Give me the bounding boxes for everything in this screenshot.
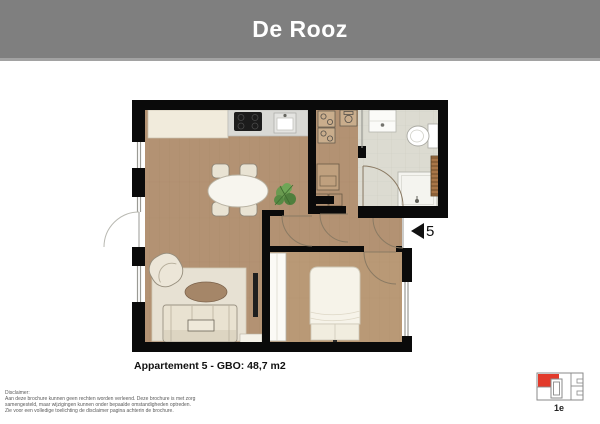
floorplan-drawing (0, 0, 600, 424)
vanity-sink-icon (369, 110, 396, 132)
disclaimer-line: Zie voor een volledige toelichting de di… (5, 408, 305, 414)
bed (310, 267, 360, 343)
tv-icon (253, 273, 258, 317)
entry-marker-number: 5 (426, 223, 434, 240)
coffee-table (185, 282, 227, 302)
entry-marker: 5 (411, 222, 434, 240)
kitchen-counter (148, 110, 308, 138)
boiler-icon (340, 110, 357, 126)
dining-table (208, 175, 268, 207)
wardrobe (268, 253, 286, 341)
disclaimer-block: Disclaimer: Aan deze brochure kunnen gee… (5, 390, 305, 414)
counter-cream (148, 110, 228, 138)
key-plan-legend: 1e (528, 368, 590, 413)
bottom-wall-element (240, 334, 262, 343)
brochure-page: De Rooz (0, 0, 600, 424)
toilet-icon (407, 124, 438, 148)
dryer-icon (318, 128, 335, 143)
sink-icon (274, 113, 296, 133)
sofa (163, 305, 237, 342)
floor-label: 1e (528, 403, 590, 413)
entry-arrow-icon (411, 223, 424, 239)
washer-icon (318, 111, 335, 127)
apartment-caption: Appartement 5 - GBO: 48,7 m2 (134, 360, 286, 372)
cooktop-icon (234, 112, 262, 131)
sofa-tray (188, 320, 214, 331)
